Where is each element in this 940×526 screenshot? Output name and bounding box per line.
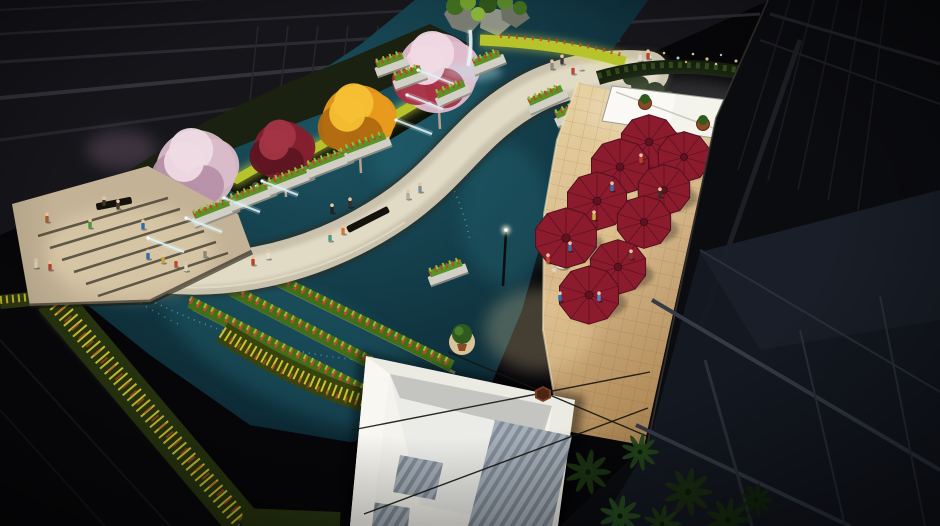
render-stage (0, 0, 940, 526)
vignette-overlay (0, 0, 940, 526)
courtyard-night-render (0, 0, 940, 526)
